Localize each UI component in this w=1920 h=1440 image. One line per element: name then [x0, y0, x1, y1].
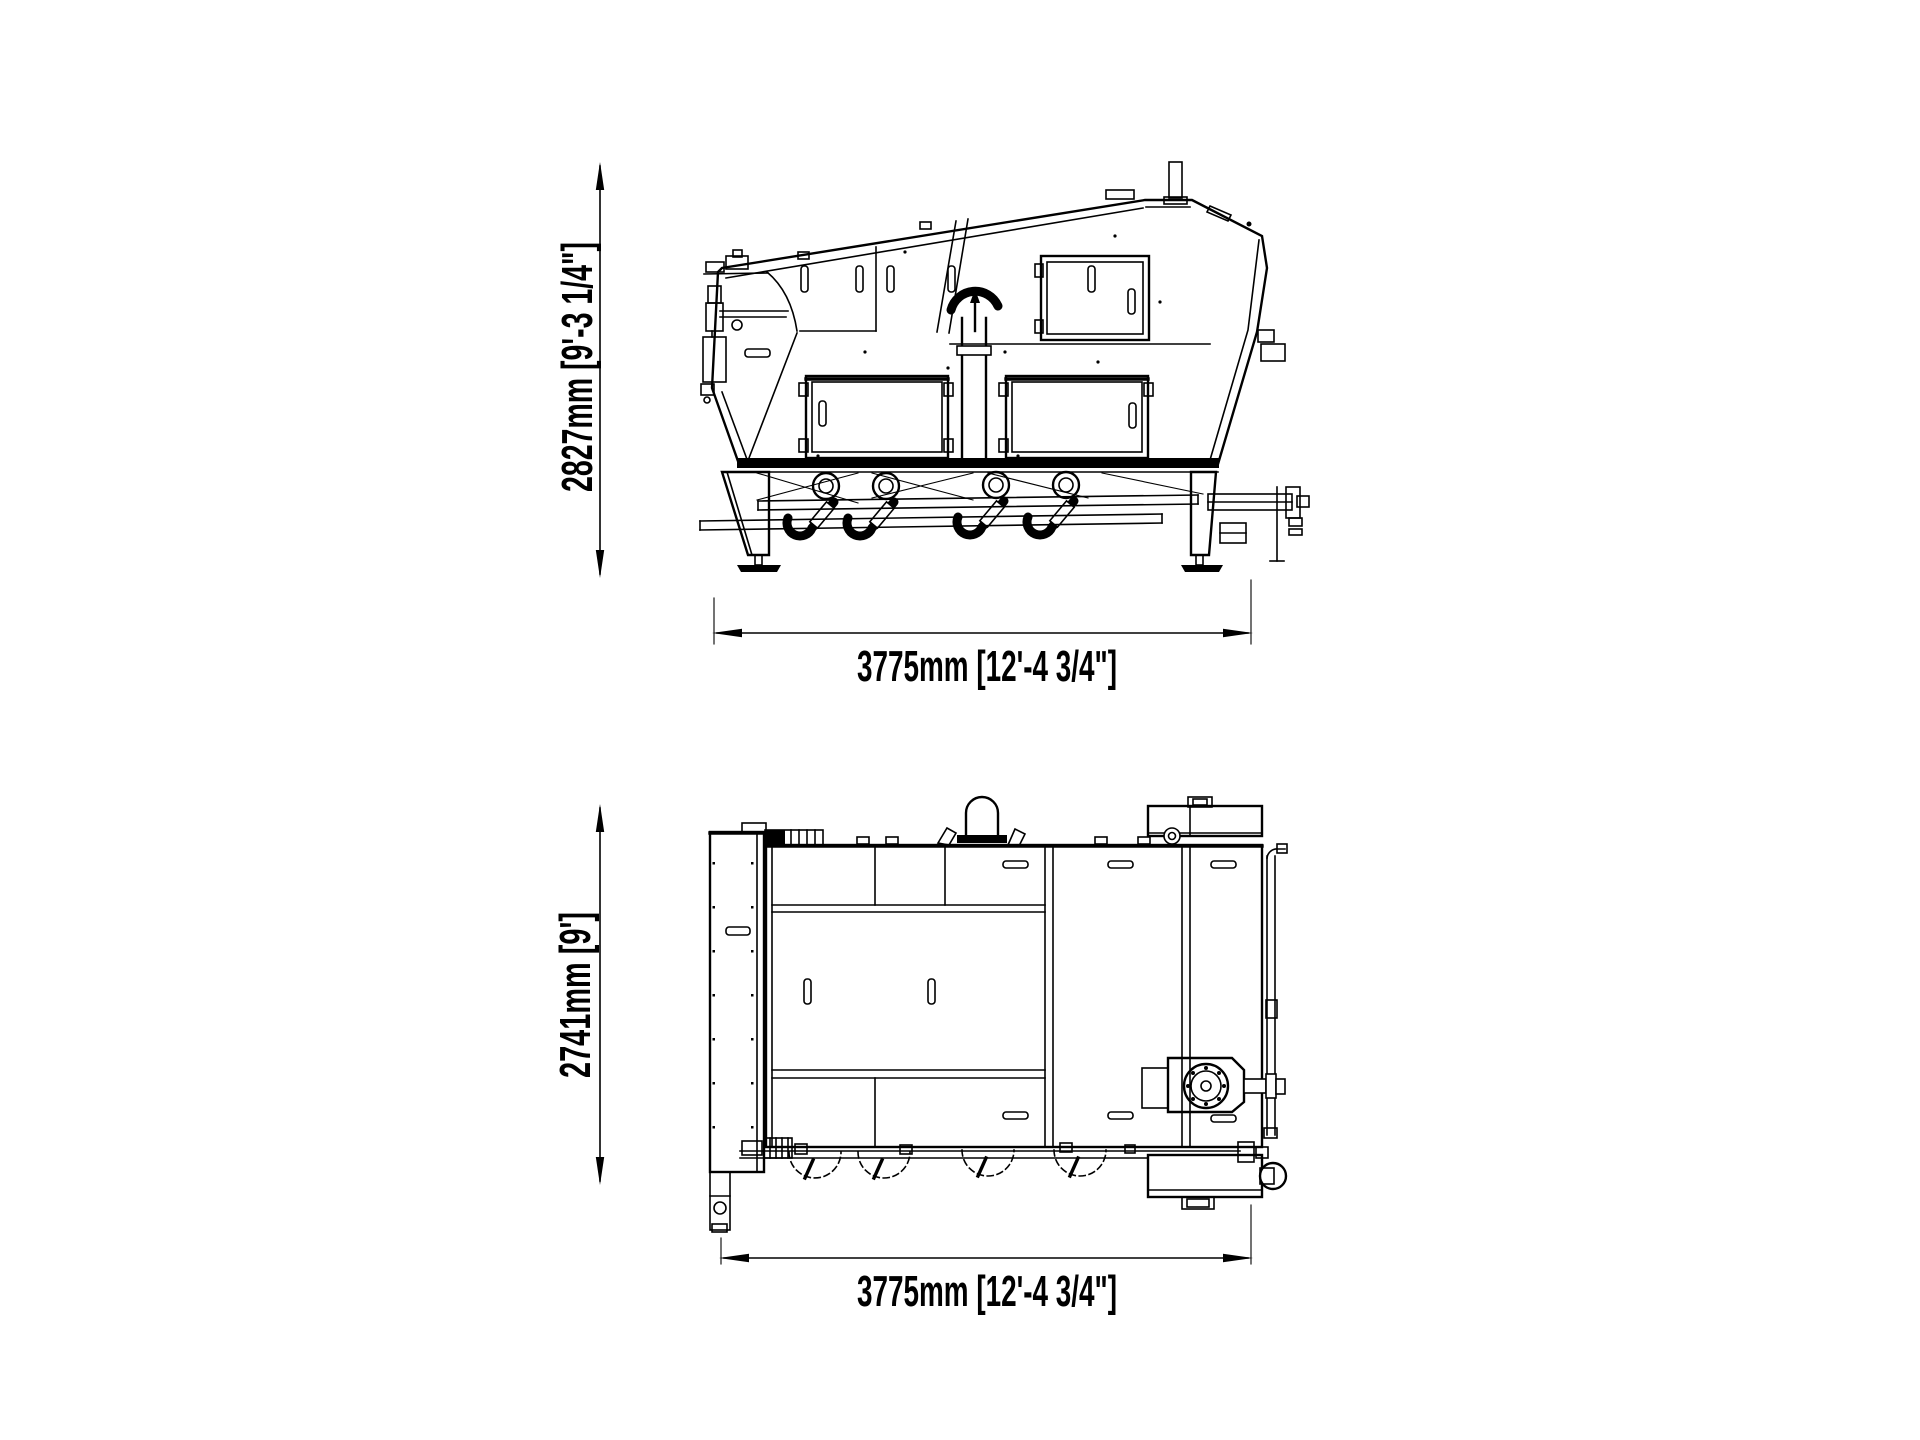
- support-legs: [722, 472, 1223, 572]
- chassis-rail: [737, 458, 1219, 472]
- arrow-down-icon: [596, 1157, 604, 1185]
- side-height-dimension-label: 2827mm [9'-3 1/4"]: [553, 242, 602, 492]
- upper-access-door: [1035, 256, 1149, 340]
- plan-view: [710, 797, 1287, 1232]
- side-view: [700, 162, 1309, 572]
- side-view-length-dimension: 3775mm [12'-4 3/4"]: [712, 580, 1253, 691]
- bottom-rail-and-augers: [740, 1138, 1268, 1178]
- pump-assembly: [1142, 1058, 1285, 1112]
- deck-panels: [766, 845, 1262, 1147]
- arrow-right-icon: [1223, 629, 1253, 637]
- lower-access-doors: [799, 376, 1153, 458]
- technical-drawing-page: 2827mm [9'-3 1/4"] 3775mm [12'-4 3/4"]: [0, 0, 1920, 1440]
- arrow-up-icon: [596, 162, 604, 190]
- left-walkway-strip: [710, 823, 766, 1232]
- drive-shaft: [1244, 1079, 1266, 1093]
- discharge-down-pipe: [951, 289, 998, 461]
- hinge-dots: [713, 862, 754, 1129]
- foot-pad: [1181, 565, 1223, 572]
- foot-pad: [737, 565, 781, 572]
- exhaust-dome: [938, 797, 1025, 846]
- machine-dimension-drawing: 2827mm [9'-3 1/4"] 3775mm [12'-4 3/4"]: [0, 0, 1920, 1440]
- body-outline: [712, 200, 1267, 464]
- plan-depth-dimension-label: 2741mm [9']: [551, 912, 600, 1078]
- side-view-height-dimension: 2827mm [9'-3 1/4"]: [553, 162, 604, 578]
- top-right-junction-box: [1148, 797, 1262, 844]
- plan-view-length-dimension: 3775mm [12'-4 3/4"]: [719, 1205, 1253, 1316]
- pipe-manifold: [700, 472, 1203, 536]
- plan-view-depth-dimension: 2741mm [9']: [551, 804, 604, 1185]
- roof-hatch: [1106, 190, 1134, 199]
- plan-length-dimension-label: 3775mm [12'-4 3/4"]: [857, 1267, 1117, 1316]
- arrow-right-icon: [1223, 1254, 1253, 1262]
- bottom-gearbox: [1148, 1155, 1286, 1209]
- side-length-dimension-label: 3775mm [12'-4 3/4"]: [857, 642, 1117, 691]
- arrow-left-icon: [719, 1254, 749, 1262]
- top-edge-fittings: [765, 797, 1262, 846]
- front-bracket: [710, 1172, 730, 1230]
- arrow-left-icon: [712, 629, 742, 637]
- chimney-pipe: [1169, 162, 1182, 198]
- arrow-up-icon: [596, 804, 604, 832]
- arrow-down-icon: [596, 550, 604, 578]
- door-handle-slot: [1128, 289, 1135, 314]
